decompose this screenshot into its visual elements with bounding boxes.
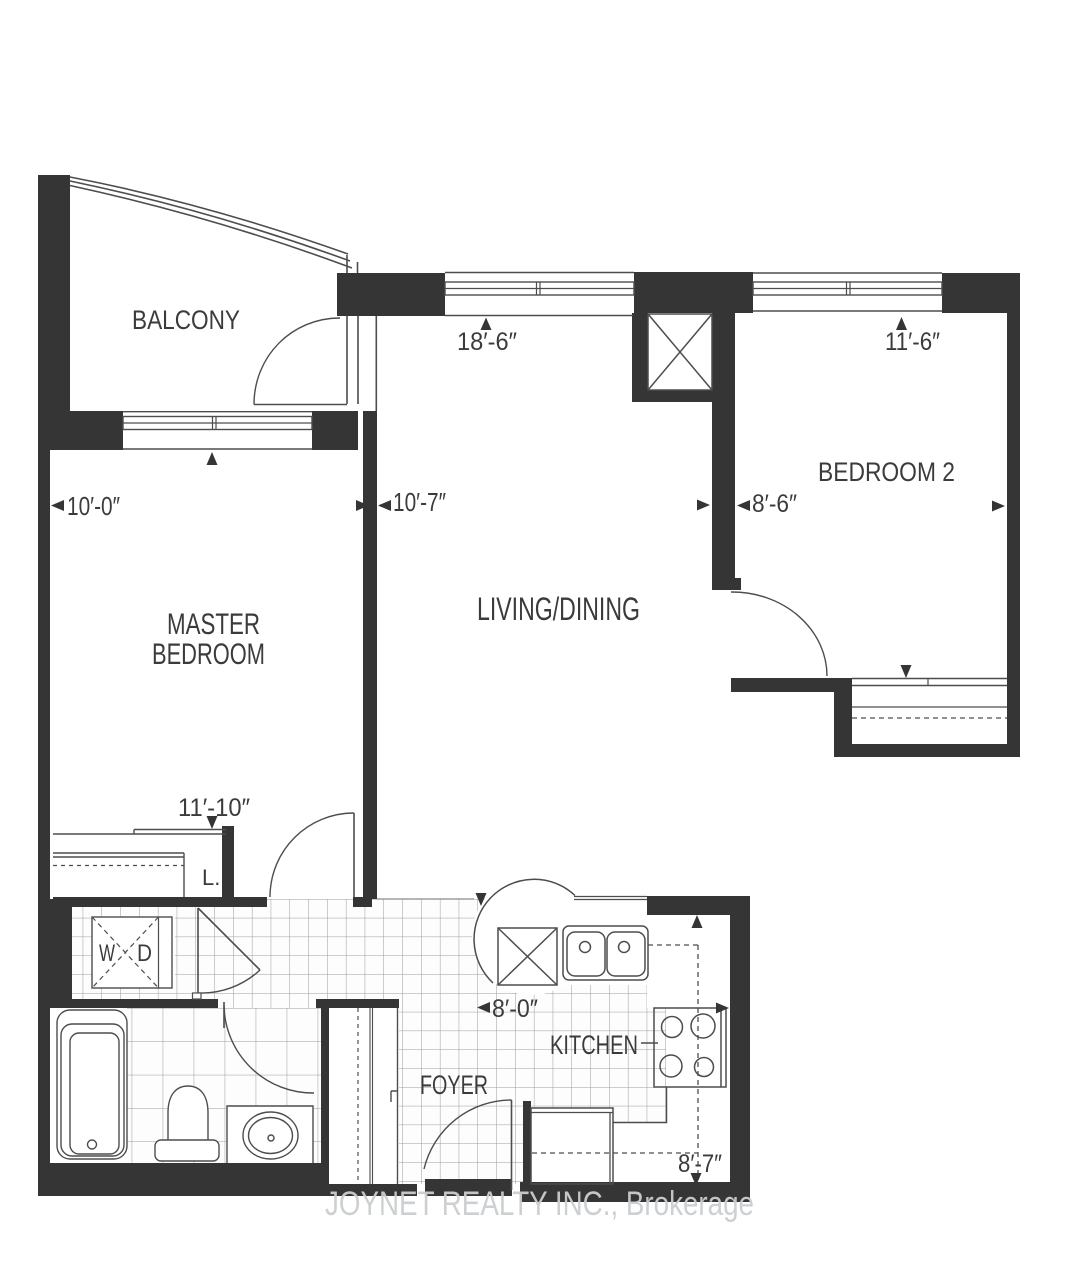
svg-text:L.: L. [202, 865, 220, 890]
svg-text:FOYER: FOYER [420, 1070, 488, 1100]
svg-text:BEDROOM: BEDROOM [152, 638, 265, 671]
svg-text:11′-6″: 11′-6″ [885, 328, 940, 356]
svg-text:LIVING/DINING: LIVING/DINING [477, 591, 640, 627]
svg-text:18′-6″: 18′-6″ [457, 328, 517, 356]
svg-text:MASTER: MASTER [167, 608, 260, 641]
svg-text:8′-7″: 8′-7″ [678, 1150, 722, 1178]
svg-text:8′-0″: 8′-0″ [492, 995, 538, 1023]
svg-text:10′-7″: 10′-7″ [393, 487, 446, 517]
svg-text:BEDROOM 2: BEDROOM 2 [818, 457, 955, 487]
svg-text:10′-0″: 10′-0″ [67, 491, 120, 521]
svg-text:JOYNET REALTY INC., Brokerage: JOYNET REALTY INC., Brokerage [325, 1185, 754, 1223]
svg-text:11′-10″: 11′-10″ [178, 794, 250, 822]
svg-text:KITCHEN: KITCHEN [550, 1030, 638, 1060]
svg-text:8′-6″: 8′-6″ [752, 490, 797, 518]
svg-text:D: D [137, 940, 152, 967]
svg-text:W: W [99, 940, 115, 967]
svg-text:BALCONY: BALCONY [132, 305, 240, 335]
